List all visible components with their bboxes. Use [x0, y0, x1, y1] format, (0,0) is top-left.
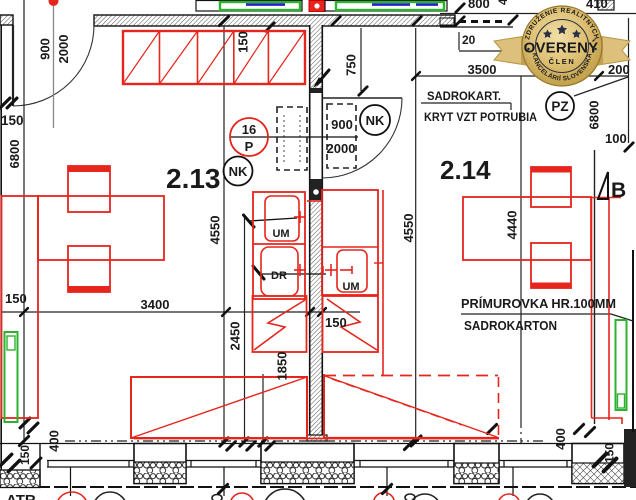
svg-text:750: 750	[344, 54, 359, 76]
svg-text:NK: NK	[366, 113, 385, 128]
svg-text:2000: 2000	[327, 141, 356, 156]
svg-text:B: B	[611, 179, 626, 202]
svg-text:6800: 6800	[7, 140, 22, 169]
svg-text:UM: UM	[342, 281, 359, 293]
svg-text:3500: 3500	[468, 62, 497, 77]
svg-text:2000: 2000	[56, 35, 71, 64]
svg-text:PRÍMUROVKA HR.100MM: PRÍMUROVKA HR.100MM	[461, 296, 616, 311]
svg-text:4550: 4550	[208, 216, 223, 245]
svg-text:OVERENÝ: OVERENÝ	[524, 39, 599, 57]
svg-text:UM: UM	[272, 228, 289, 240]
svg-text:4440: 4440	[505, 211, 520, 240]
svg-text:150: 150	[236, 31, 251, 53]
svg-text:NK: NK	[229, 164, 248, 179]
svg-text:400: 400	[553, 428, 568, 450]
svg-text:3400: 3400	[141, 297, 170, 312]
svg-text:ATR: ATR	[6, 492, 36, 500]
svg-text:400: 400	[47, 430, 62, 452]
svg-text:200: 200	[608, 62, 630, 77]
svg-text:900: 900	[331, 117, 353, 132]
svg-text:20: 20	[462, 33, 476, 47]
svg-text:100: 100	[605, 131, 627, 146]
svg-text:SADROKARTON: SADROKARTON	[464, 319, 557, 333]
svg-text:ČLEN: ČLEN	[549, 57, 576, 66]
svg-text:150: 150	[603, 443, 617, 463]
svg-text:900: 900	[38, 38, 53, 60]
svg-text:KRYT VZT POTRUBIA: KRYT VZT POTRUBIA	[424, 110, 537, 124]
svg-text:150: 150	[1, 113, 24, 128]
svg-text:6800: 6800	[587, 101, 602, 130]
svg-text:4550: 4550	[401, 214, 416, 243]
svg-text:SADROKART.: SADROKART.	[427, 89, 501, 103]
svg-text:PZ: PZ	[551, 99, 568, 114]
svg-text:P: P	[245, 139, 254, 154]
svg-text:DR: DR	[271, 270, 287, 282]
svg-text:150: 150	[325, 315, 347, 330]
svg-text:2.13: 2.13	[166, 163, 221, 194]
svg-text:2.14: 2.14	[440, 155, 491, 185]
svg-text:150: 150	[5, 291, 27, 306]
svg-text:16: 16	[242, 122, 256, 137]
svg-text:1850: 1850	[275, 352, 290, 381]
svg-text:150: 150	[18, 445, 32, 465]
svg-text:2450: 2450	[228, 322, 243, 351]
svg-text:410: 410	[586, 0, 608, 11]
svg-text:800: 800	[468, 0, 490, 11]
svg-text:44: 44	[496, 0, 510, 5]
